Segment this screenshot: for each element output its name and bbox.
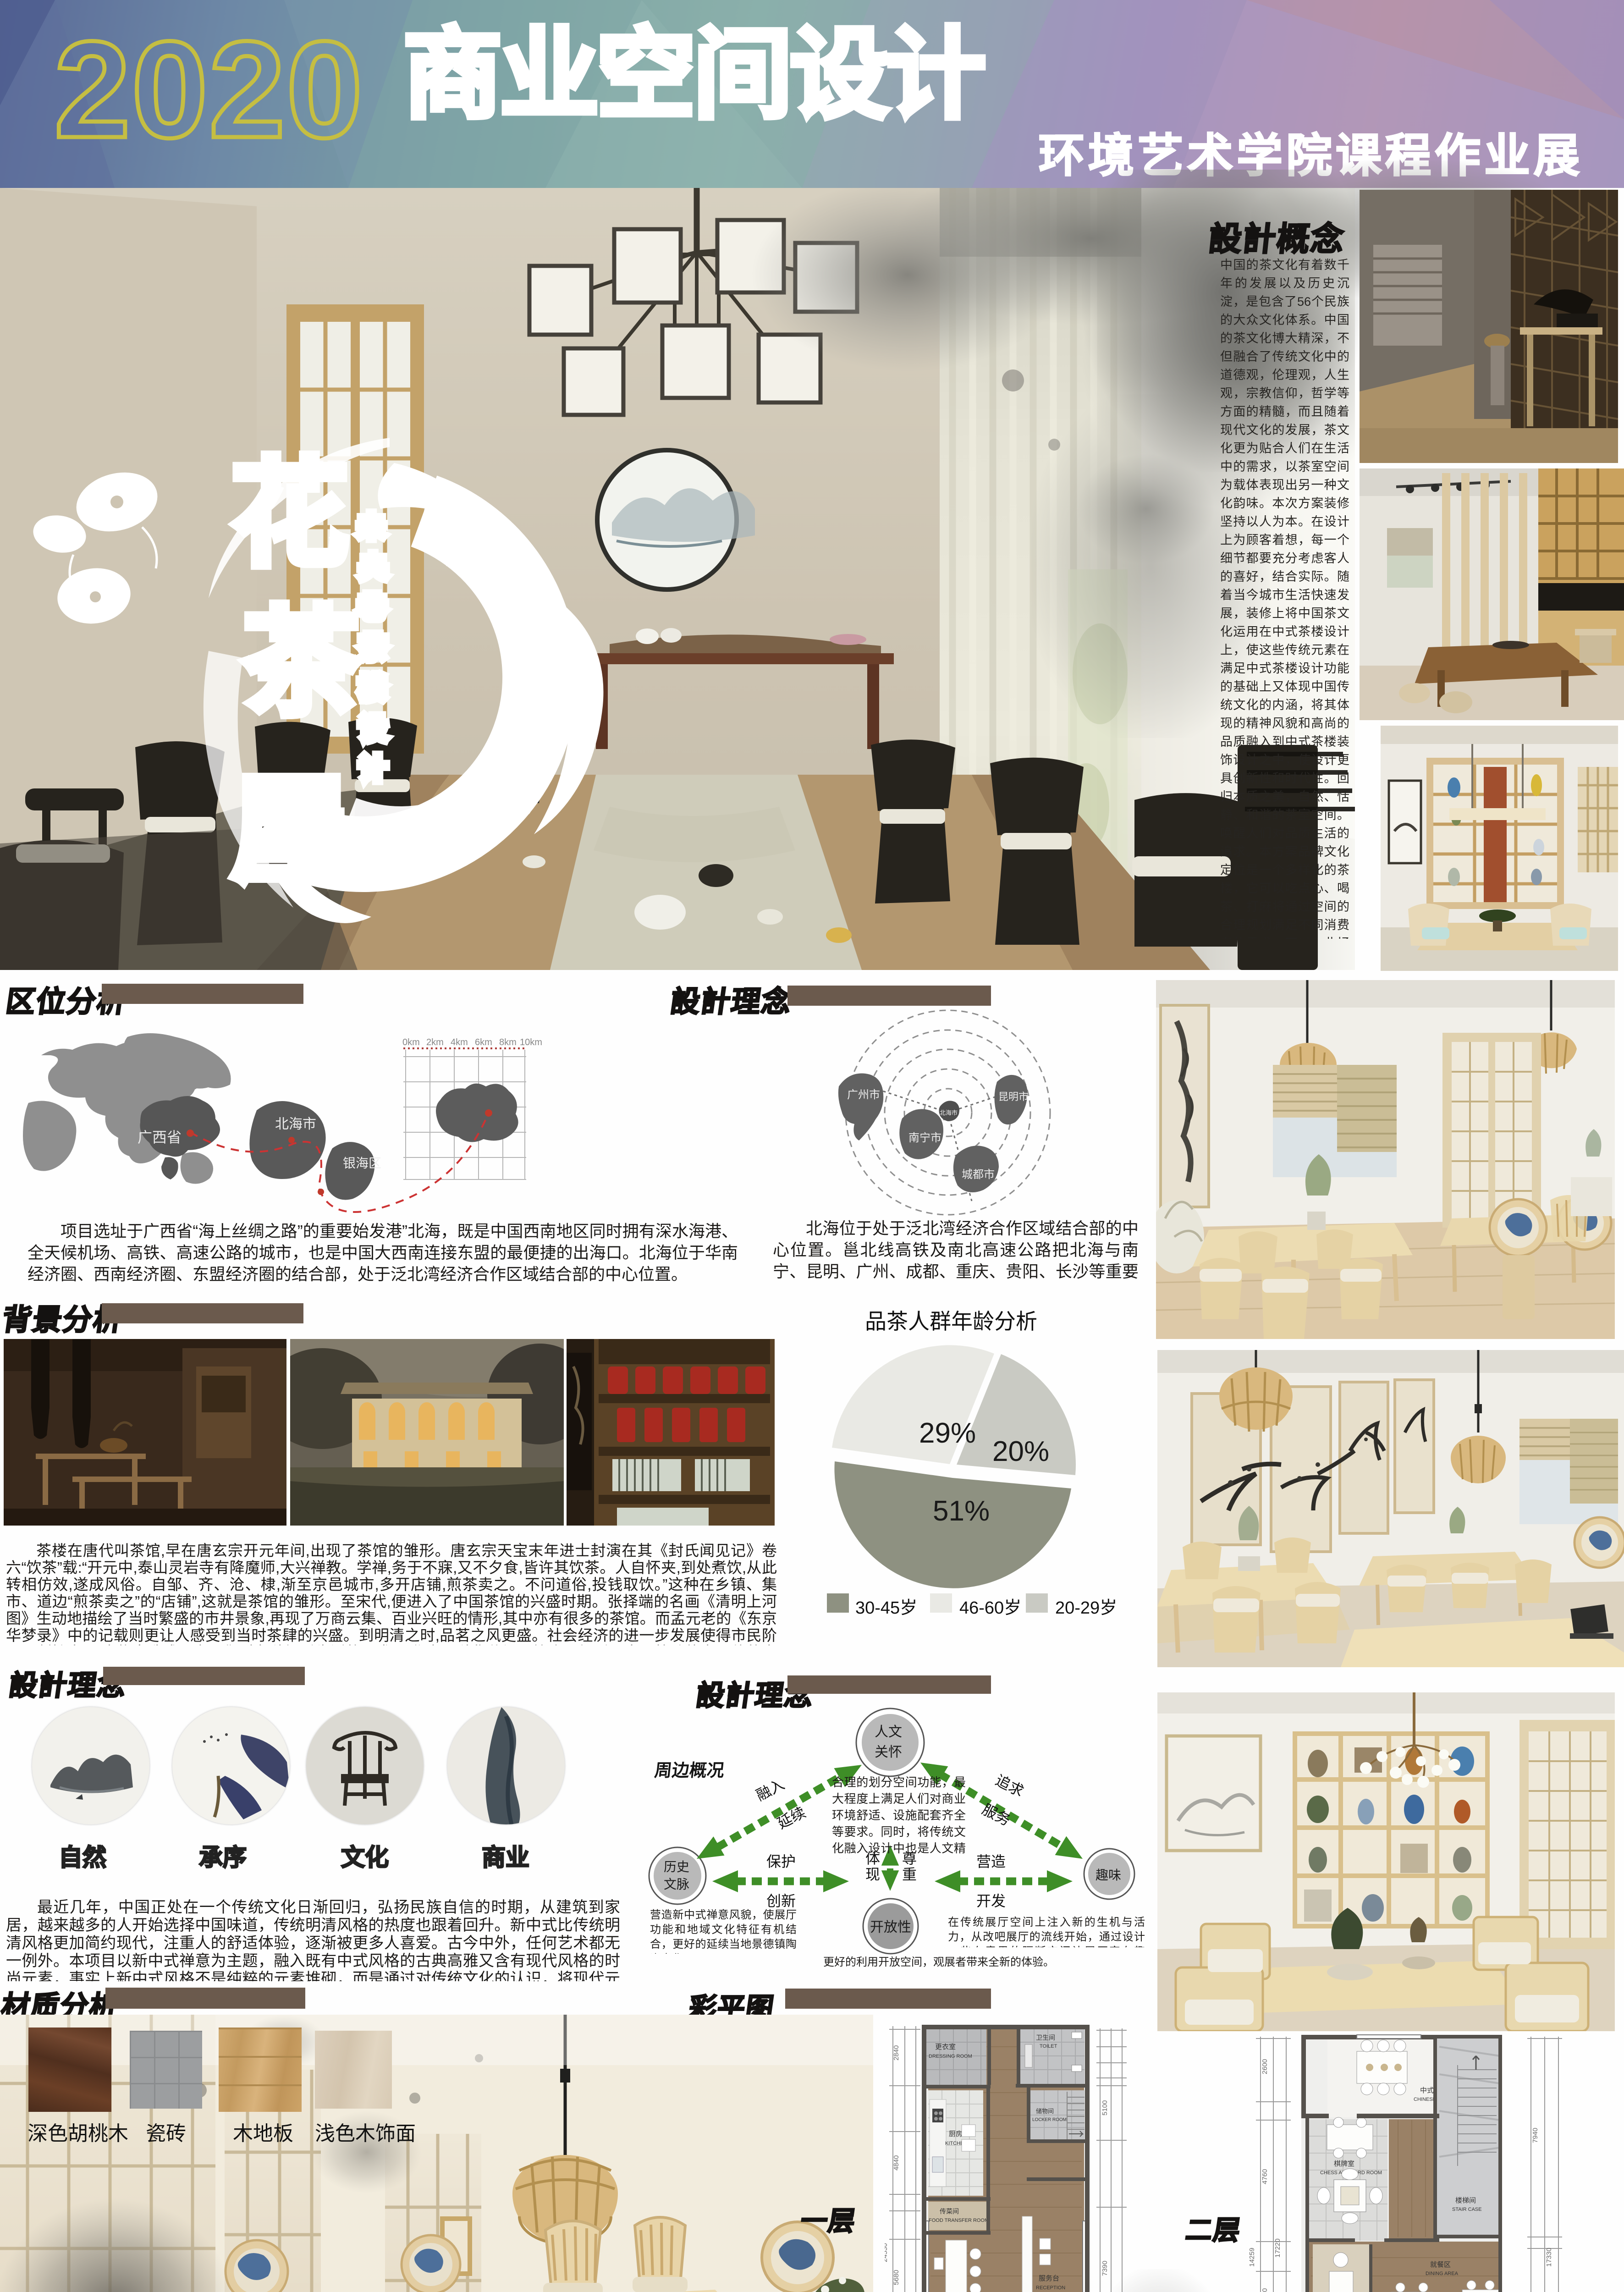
svg-text:历史: 历史 — [664, 1860, 689, 1874]
svg-text:5680: 5680 — [892, 2270, 900, 2285]
svg-text:未: 未 — [358, 512, 385, 542]
svg-text:17330: 17330 — [1545, 2248, 1553, 2267]
svg-text:营造: 营造 — [976, 1853, 1006, 1870]
svg-text:追求: 追求 — [993, 1772, 1026, 1800]
svg-text:FOOD TRANSFER ROOM: FOOD TRANSFER ROOM — [929, 2218, 989, 2223]
svg-text:人文: 人文 — [875, 1725, 902, 1740]
svg-text:STAIR CASE: STAIR CASE — [1452, 2207, 1482, 2212]
svg-text:棋牌室: 棋牌室 — [1334, 2160, 1354, 2168]
svg-text:开发: 开发 — [976, 1893, 1006, 1909]
svg-text:融入: 融入 — [754, 1776, 787, 1804]
svg-text:14259: 14259 — [1248, 2248, 1256, 2267]
svg-text:中式: 中式 — [1420, 2087, 1434, 2094]
svg-text:DRESSING ROOM: DRESSING ROOM — [929, 2054, 972, 2059]
svg-text:10km: 10km — [520, 1037, 542, 1047]
svg-text:7940: 7940 — [1531, 2128, 1539, 2143]
svg-text:2840: 2840 — [892, 2045, 900, 2061]
svg-text:TOILET: TOILET — [1040, 2044, 1057, 2049]
svg-text:广州市: 广州市 — [847, 1089, 880, 1101]
svg-text:5100: 5100 — [1101, 2100, 1109, 2116]
svg-text:卫生间: 卫生间 — [1036, 2034, 1055, 2041]
svg-text:楼梯间: 楼梯间 — [1455, 2197, 1476, 2204]
svg-text:关怀: 关怀 — [875, 1745, 902, 1760]
svg-text:RECEPTION: RECEPTION — [1036, 2285, 1065, 2291]
svg-text:厨房: 厨房 — [949, 2130, 963, 2138]
svg-text:北海市: 北海市 — [275, 1117, 316, 1132]
svg-text:2km: 2km — [426, 1037, 444, 1047]
svg-text:20%: 20% — [992, 1436, 1049, 1467]
svg-text:趣味: 趣味 — [1096, 1868, 1121, 1882]
svg-text:保护: 保护 — [766, 1853, 796, 1870]
svg-text:北海市: 北海市 — [940, 1109, 958, 1116]
svg-text:服务台: 服务台 — [1039, 2275, 1059, 2282]
svg-text:城都市: 城都市 — [962, 1168, 995, 1181]
svg-text:4km: 4km — [451, 1037, 468, 1047]
svg-text:昆明市: 昆明市 — [998, 1091, 1029, 1102]
svg-text:储物间: 储物间 — [1036, 2108, 1054, 2115]
svg-text:更衣室: 更衣室 — [935, 2043, 956, 2051]
svg-text:开放性: 开放性 — [870, 1920, 911, 1935]
svg-text:29%: 29% — [919, 1417, 976, 1449]
svg-text:5770: 5770 — [1261, 2288, 1269, 2292]
svg-text:51%: 51% — [933, 1495, 990, 1527]
svg-text:巷: 巷 — [358, 592, 386, 623]
svg-text:24530: 24530 — [885, 2243, 889, 2262]
svg-text:周边概况: 周边概况 — [654, 1761, 725, 1780]
svg-text:8km: 8km — [499, 1037, 517, 1047]
svg-text:屋: 屋 — [231, 766, 348, 896]
svg-text:计: 计 — [359, 754, 387, 784]
svg-text:银海区: 银海区 — [343, 1156, 381, 1170]
svg-text:传菜间: 传菜间 — [940, 2208, 959, 2215]
svg-text:茶: 茶 — [243, 598, 360, 729]
svg-text:4760: 4760 — [1261, 2169, 1269, 2184]
svg-text:茶: 茶 — [359, 633, 387, 663]
svg-text:南宁市: 南宁市 — [908, 1132, 941, 1144]
svg-text:广西省: 广西省 — [138, 1129, 182, 1146]
svg-text:现: 现 — [865, 1866, 880, 1883]
svg-text:LOCKER ROOM: LOCKER ROOM — [1032, 2117, 1067, 2122]
svg-text:重: 重 — [902, 1866, 917, 1883]
svg-text:花: 花 — [231, 449, 348, 580]
svg-text:2600: 2600 — [1261, 2059, 1269, 2074]
svg-text:就餐区: 就餐区 — [1430, 2261, 1451, 2269]
svg-text:4840: 4840 — [892, 2155, 900, 2171]
svg-text:设: 设 — [359, 713, 387, 744]
svg-text:央: 央 — [359, 552, 387, 583]
svg-text:楼: 楼 — [358, 673, 386, 704]
svg-text:DINING AREA: DINING AREA — [1426, 2271, 1459, 2276]
svg-text:6km: 6km — [475, 1037, 492, 1047]
svg-text:0km: 0km — [402, 1037, 420, 1047]
svg-text:创新: 创新 — [766, 1893, 796, 1909]
svg-text:文脉: 文脉 — [664, 1877, 689, 1891]
svg-text:17220: 17220 — [1274, 2238, 1282, 2258]
